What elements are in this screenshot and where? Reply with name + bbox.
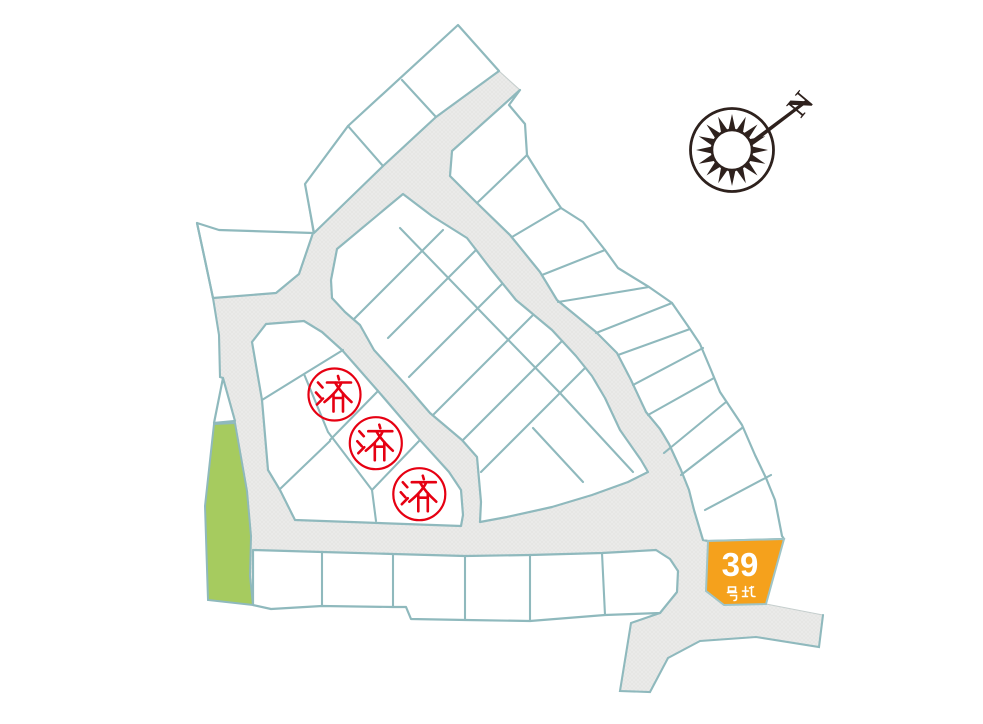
svg-text:39: 39 <box>722 546 759 583</box>
